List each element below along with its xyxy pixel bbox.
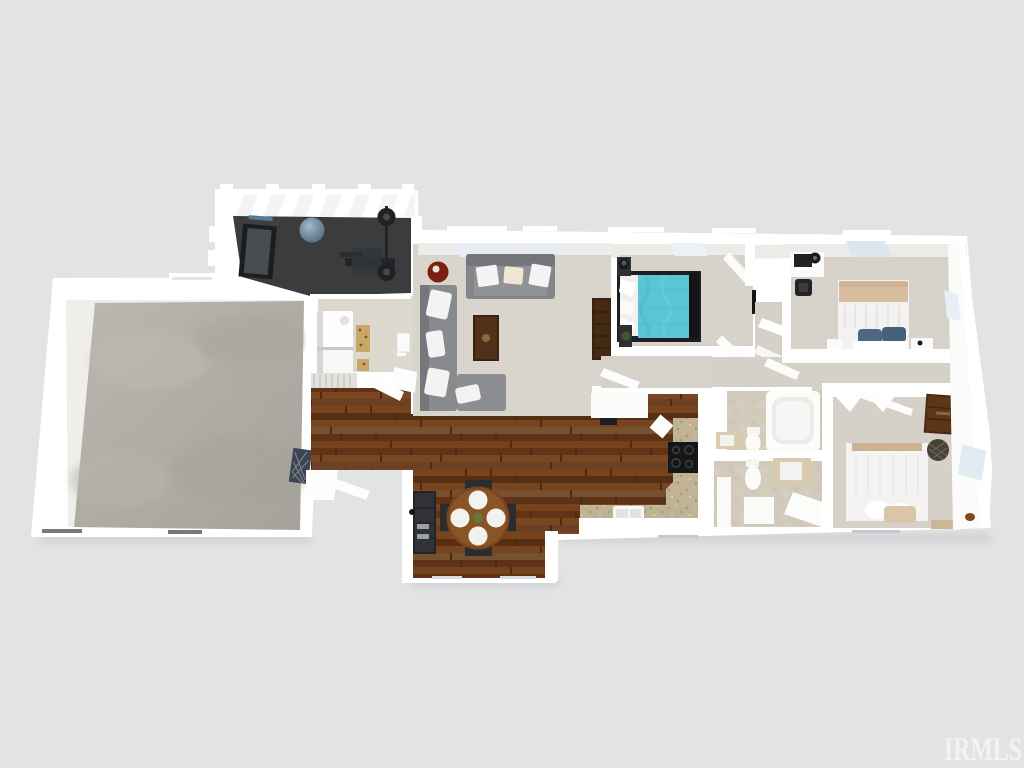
svg-text:IRMLS: IRMLS bbox=[944, 732, 1022, 768]
